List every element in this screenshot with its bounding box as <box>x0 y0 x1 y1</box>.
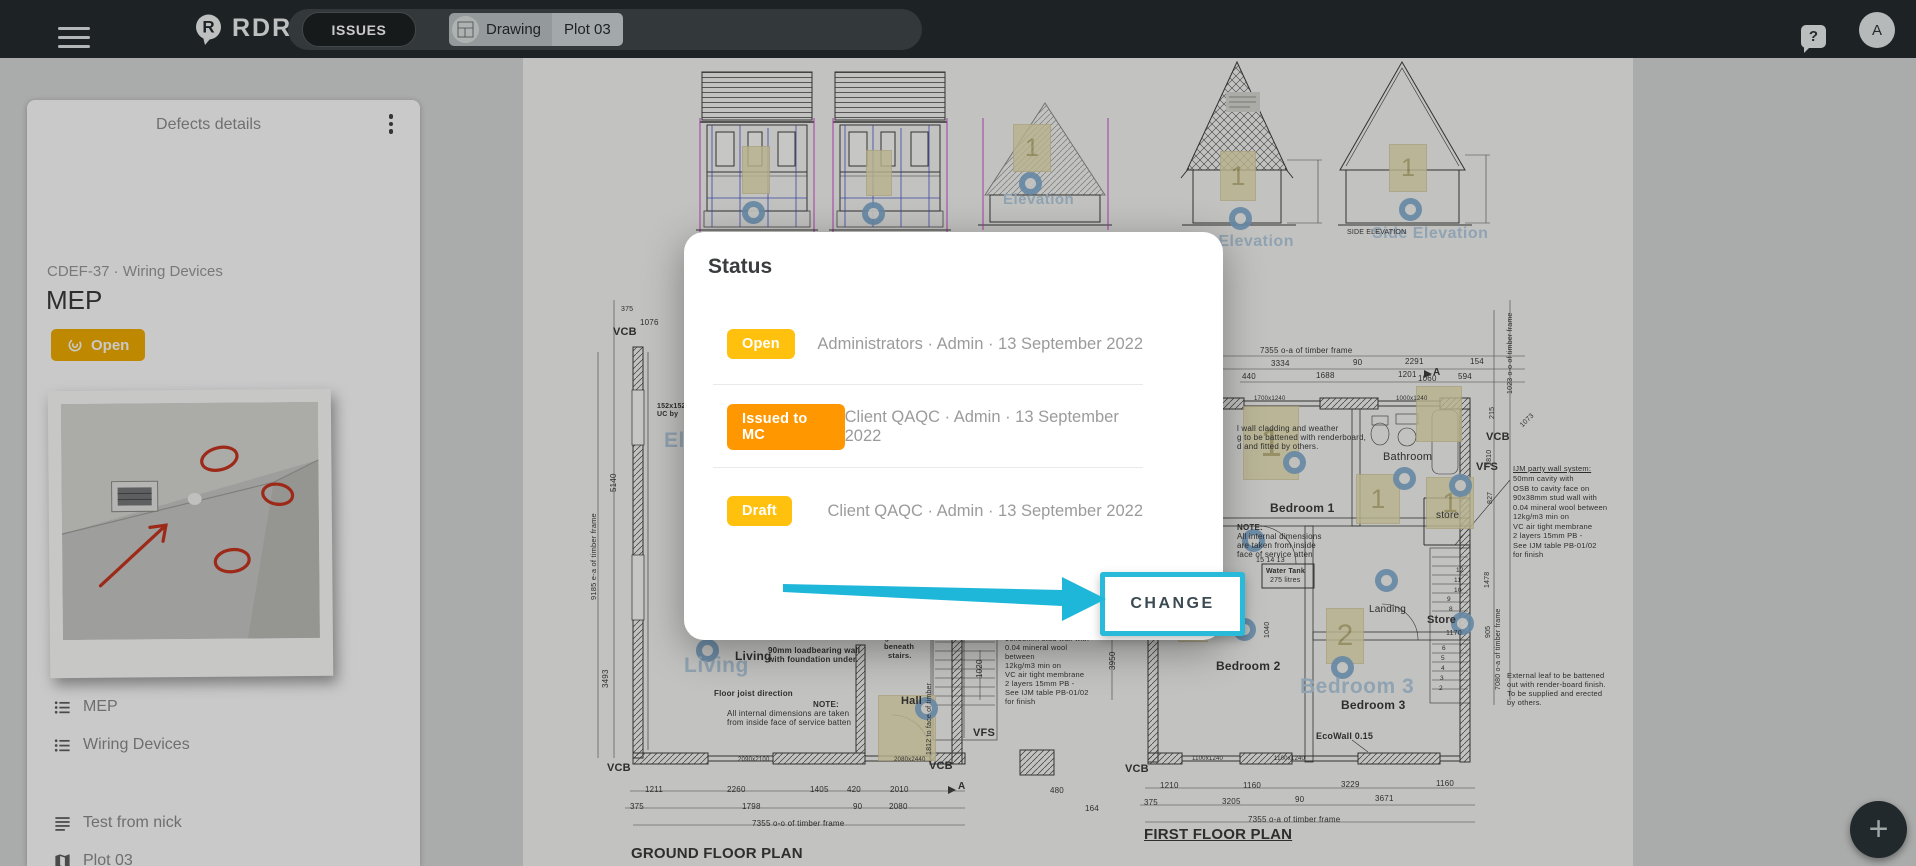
change-button[interactable]: CHANGE <box>1100 572 1245 636</box>
status-meta: Administrators · Admin · 13 September 20… <box>817 335 1143 354</box>
status-row-draft[interactable]: Draft Client QAQC · Admin · 13 September… <box>684 487 1223 535</box>
status-row-open[interactable]: Open Administrators · Admin · 13 Septemb… <box>684 320 1223 368</box>
divider <box>713 384 1143 385</box>
status-dialog: Status Open Administrators · Admin · 13 … <box>684 232 1223 640</box>
divider <box>713 467 1143 468</box>
status-meta: Client QAQC · Admin · 13 September 2022 <box>828 502 1143 521</box>
dialog-title: Status <box>708 255 772 279</box>
status-badge-open[interactable]: Open <box>727 329 795 359</box>
status-meta: Client QAQC · Admin · 13 September 2022 <box>845 408 1143 446</box>
status-badge-draft[interactable]: Draft <box>727 496 792 526</box>
status-row-issued[interactable]: Issued to MC Client QAQC · Admin · 13 Se… <box>684 403 1223 451</box>
status-badge-issued[interactable]: Issued to MC <box>727 404 845 450</box>
